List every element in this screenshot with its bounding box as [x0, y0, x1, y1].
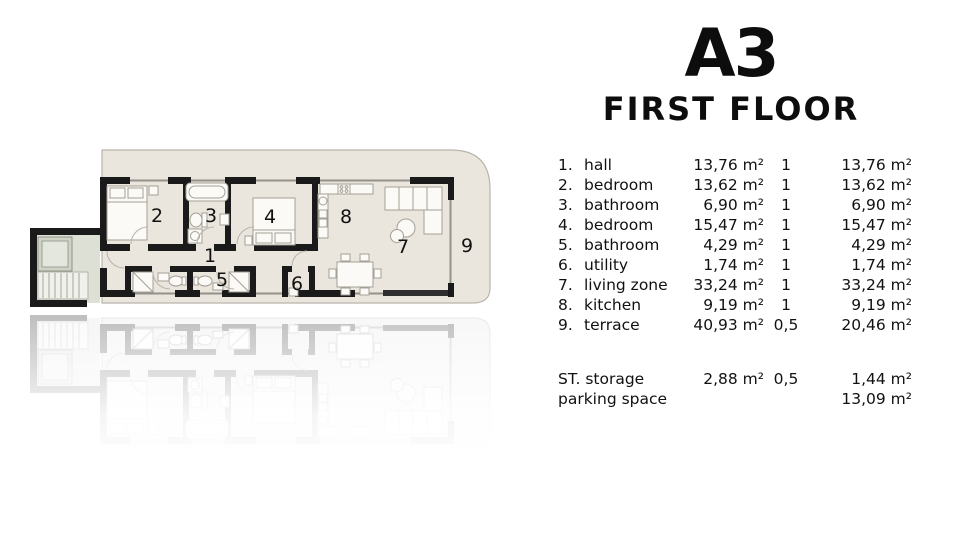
area-coefficient: 1 [764, 215, 808, 235]
weighted-area: 9,19 m² [808, 295, 912, 315]
room-name: kitchen [582, 295, 678, 315]
area-coefficient: 1 [764, 195, 808, 215]
room-name: bathroom [582, 235, 678, 255]
room-area: 4,29 m² [678, 235, 764, 255]
room-label-bedroom4: 4 [264, 206, 276, 228]
table-row: 2. bedroom 13,62 m² 1 13,62 m² [558, 175, 912, 195]
room-area [678, 389, 764, 409]
room-area: 13,62 m² [678, 175, 764, 195]
row-number: 9. [558, 315, 582, 335]
unit-code: A3 [531, 18, 931, 90]
reflection-fade-overlay [0, 315, 520, 475]
room-name: bedroom [582, 215, 678, 235]
area-coefficient: 0,5 [764, 369, 808, 389]
area-coefficient: 1 [764, 295, 808, 315]
weighted-area: 13,76 m² [808, 155, 912, 175]
row-number: 7. [558, 275, 582, 295]
table-row: 9. terrace 40,93 m² 0,5 20,46 m² [558, 315, 912, 335]
weighted-area: 15,47 m² [808, 215, 912, 235]
area-table: 1. hall 13,76 m² 1 13,76 m² 2. bedroom 1… [558, 155, 912, 409]
room-area: 1,74 m² [678, 255, 764, 275]
table-row: 7. living zone 33,24 m² 1 33,24 m² [558, 275, 912, 295]
extra-label: parking space [558, 389, 678, 409]
weighted-area: 13,62 m² [808, 175, 912, 195]
title-block: A3 FIRST FLOOR [531, 18, 931, 126]
table-row: 3. bathroom 6,90 m² 1 6,90 m² [558, 195, 912, 215]
room-label-terrace9: 9 [461, 235, 473, 257]
area-coefficient: 1 [764, 175, 808, 195]
plan-drawing [30, 150, 490, 307]
table-row: 4. bedroom 15,47 m² 1 15,47 m² [558, 215, 912, 235]
room-area: 2,88 m² [678, 369, 764, 389]
room-name: bathroom [582, 195, 678, 215]
room-label-hall: 1 [204, 245, 216, 267]
table-row: 5. bathroom 4,29 m² 1 4,29 m² [558, 235, 912, 255]
room-label-bathroom3: 3 [205, 205, 217, 227]
table-row: 8. kitchen 9,19 m² 1 9,19 m² [558, 295, 912, 315]
extra-label: ST. storage [558, 369, 678, 389]
row-number: 8. [558, 295, 582, 315]
weighted-area: 13,09 m² [808, 389, 912, 409]
weighted-area: 1,74 m² [808, 255, 912, 275]
row-number: 6. [558, 255, 582, 275]
room-name: bedroom [582, 175, 678, 195]
room-label-bedroom2: 2 [151, 205, 163, 227]
area-coefficient [764, 389, 808, 409]
table-row-parking: parking space 13,09 m² [558, 389, 912, 409]
room-area: 6,90 m² [678, 195, 764, 215]
area-coefficient: 1 [764, 155, 808, 175]
weighted-area: 20,46 m² [808, 315, 912, 335]
row-number: 1. [558, 155, 582, 175]
row-number: 5. [558, 235, 582, 255]
room-name: utility [582, 255, 678, 275]
room-label-utility6: 6 [291, 273, 303, 295]
row-number: 2. [558, 175, 582, 195]
room-area: 40,93 m² [678, 315, 764, 335]
page: 1 2 3 4 5 6 7 8 9 A3 FIRST FLOOR 1. hall… [0, 0, 960, 540]
room-label-kitchen8: 8 [340, 206, 352, 228]
area-coefficient: 1 [764, 235, 808, 255]
room-name: living zone [582, 275, 678, 295]
table-row: 1. hall 13,76 m² 1 13,76 m² [558, 155, 912, 175]
room-label-bathroom5: 5 [216, 269, 228, 291]
weighted-area: 6,90 m² [808, 195, 912, 215]
room-label-living7: 7 [397, 236, 409, 258]
floor-title: FIRST FLOOR [531, 92, 931, 126]
weighted-area: 4,29 m² [808, 235, 912, 255]
row-number: 3. [558, 195, 582, 215]
weighted-area: 1,44 m² [808, 369, 912, 389]
weighted-area: 33,24 m² [808, 275, 912, 295]
area-coefficient: 1 [764, 275, 808, 295]
area-coefficient: 1 [764, 255, 808, 275]
room-name: terrace [582, 315, 678, 335]
room-area: 15,47 m² [678, 215, 764, 235]
room-area: 33,24 m² [678, 275, 764, 295]
room-area: 13,76 m² [678, 155, 764, 175]
floor-plan: 1 2 3 4 5 6 7 8 9 [25, 140, 500, 315]
room-name: hall [582, 155, 678, 175]
extras-section: ST. storage 2,88 m² 0,5 1,44 m² parking … [558, 369, 912, 409]
area-coefficient: 0,5 [764, 315, 808, 335]
table-row: 6. utility 1,74 m² 1 1,74 m² [558, 255, 912, 275]
room-area: 9,19 m² [678, 295, 764, 315]
table-row-storage: ST. storage 2,88 m² 0,5 1,44 m² [558, 369, 912, 389]
row-number: 4. [558, 215, 582, 235]
